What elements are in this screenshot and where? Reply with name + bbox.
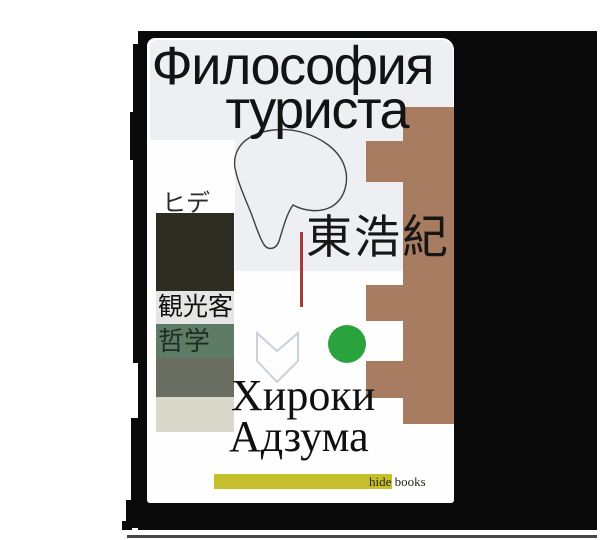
- shadow-ragged-edge: [131, 418, 139, 510]
- book-cover: Философия туриста ヒデ 観光客 哲学 東浩紀 Хироки А…: [147, 38, 454, 503]
- kanji-tourist-label: 観光客: [158, 293, 233, 321]
- publisher-label: hide books: [369, 474, 426, 490]
- green-dot: [328, 325, 366, 363]
- shadow-ragged-edge: [130, 112, 139, 160]
- book-product-image: Философия туриста ヒデ 観光客 哲学 東浩紀 Хироки А…: [0, 0, 600, 540]
- book-title-line2: туриста: [225, 88, 408, 132]
- publisher-yellow-bar: [214, 474, 392, 489]
- beige-color-bar: [156, 397, 234, 432]
- shadow-ragged-edge: [122, 521, 132, 530]
- author-name-line2: Адзума: [229, 416, 369, 457]
- brown-block-bar: [403, 107, 454, 424]
- brown-block-middle: [366, 285, 403, 321]
- author-name-line1: Хироки: [231, 375, 375, 416]
- kanji-philosophy-label: 哲学: [158, 326, 210, 356]
- dark-olive-block: [156, 213, 234, 291]
- shadow-ragged-edge: [133, 158, 139, 363]
- red-accent-line: [300, 232, 303, 307]
- brown-block-top: [366, 141, 403, 182]
- gray-color-bar: [156, 358, 234, 397]
- kanji-tourist-bar: 観光客: [156, 291, 234, 324]
- author-name-japanese: 東浩紀: [306, 214, 450, 260]
- floor-shadow-line: [127, 535, 597, 538]
- kanji-philosophy-bar: 哲学: [156, 324, 234, 358]
